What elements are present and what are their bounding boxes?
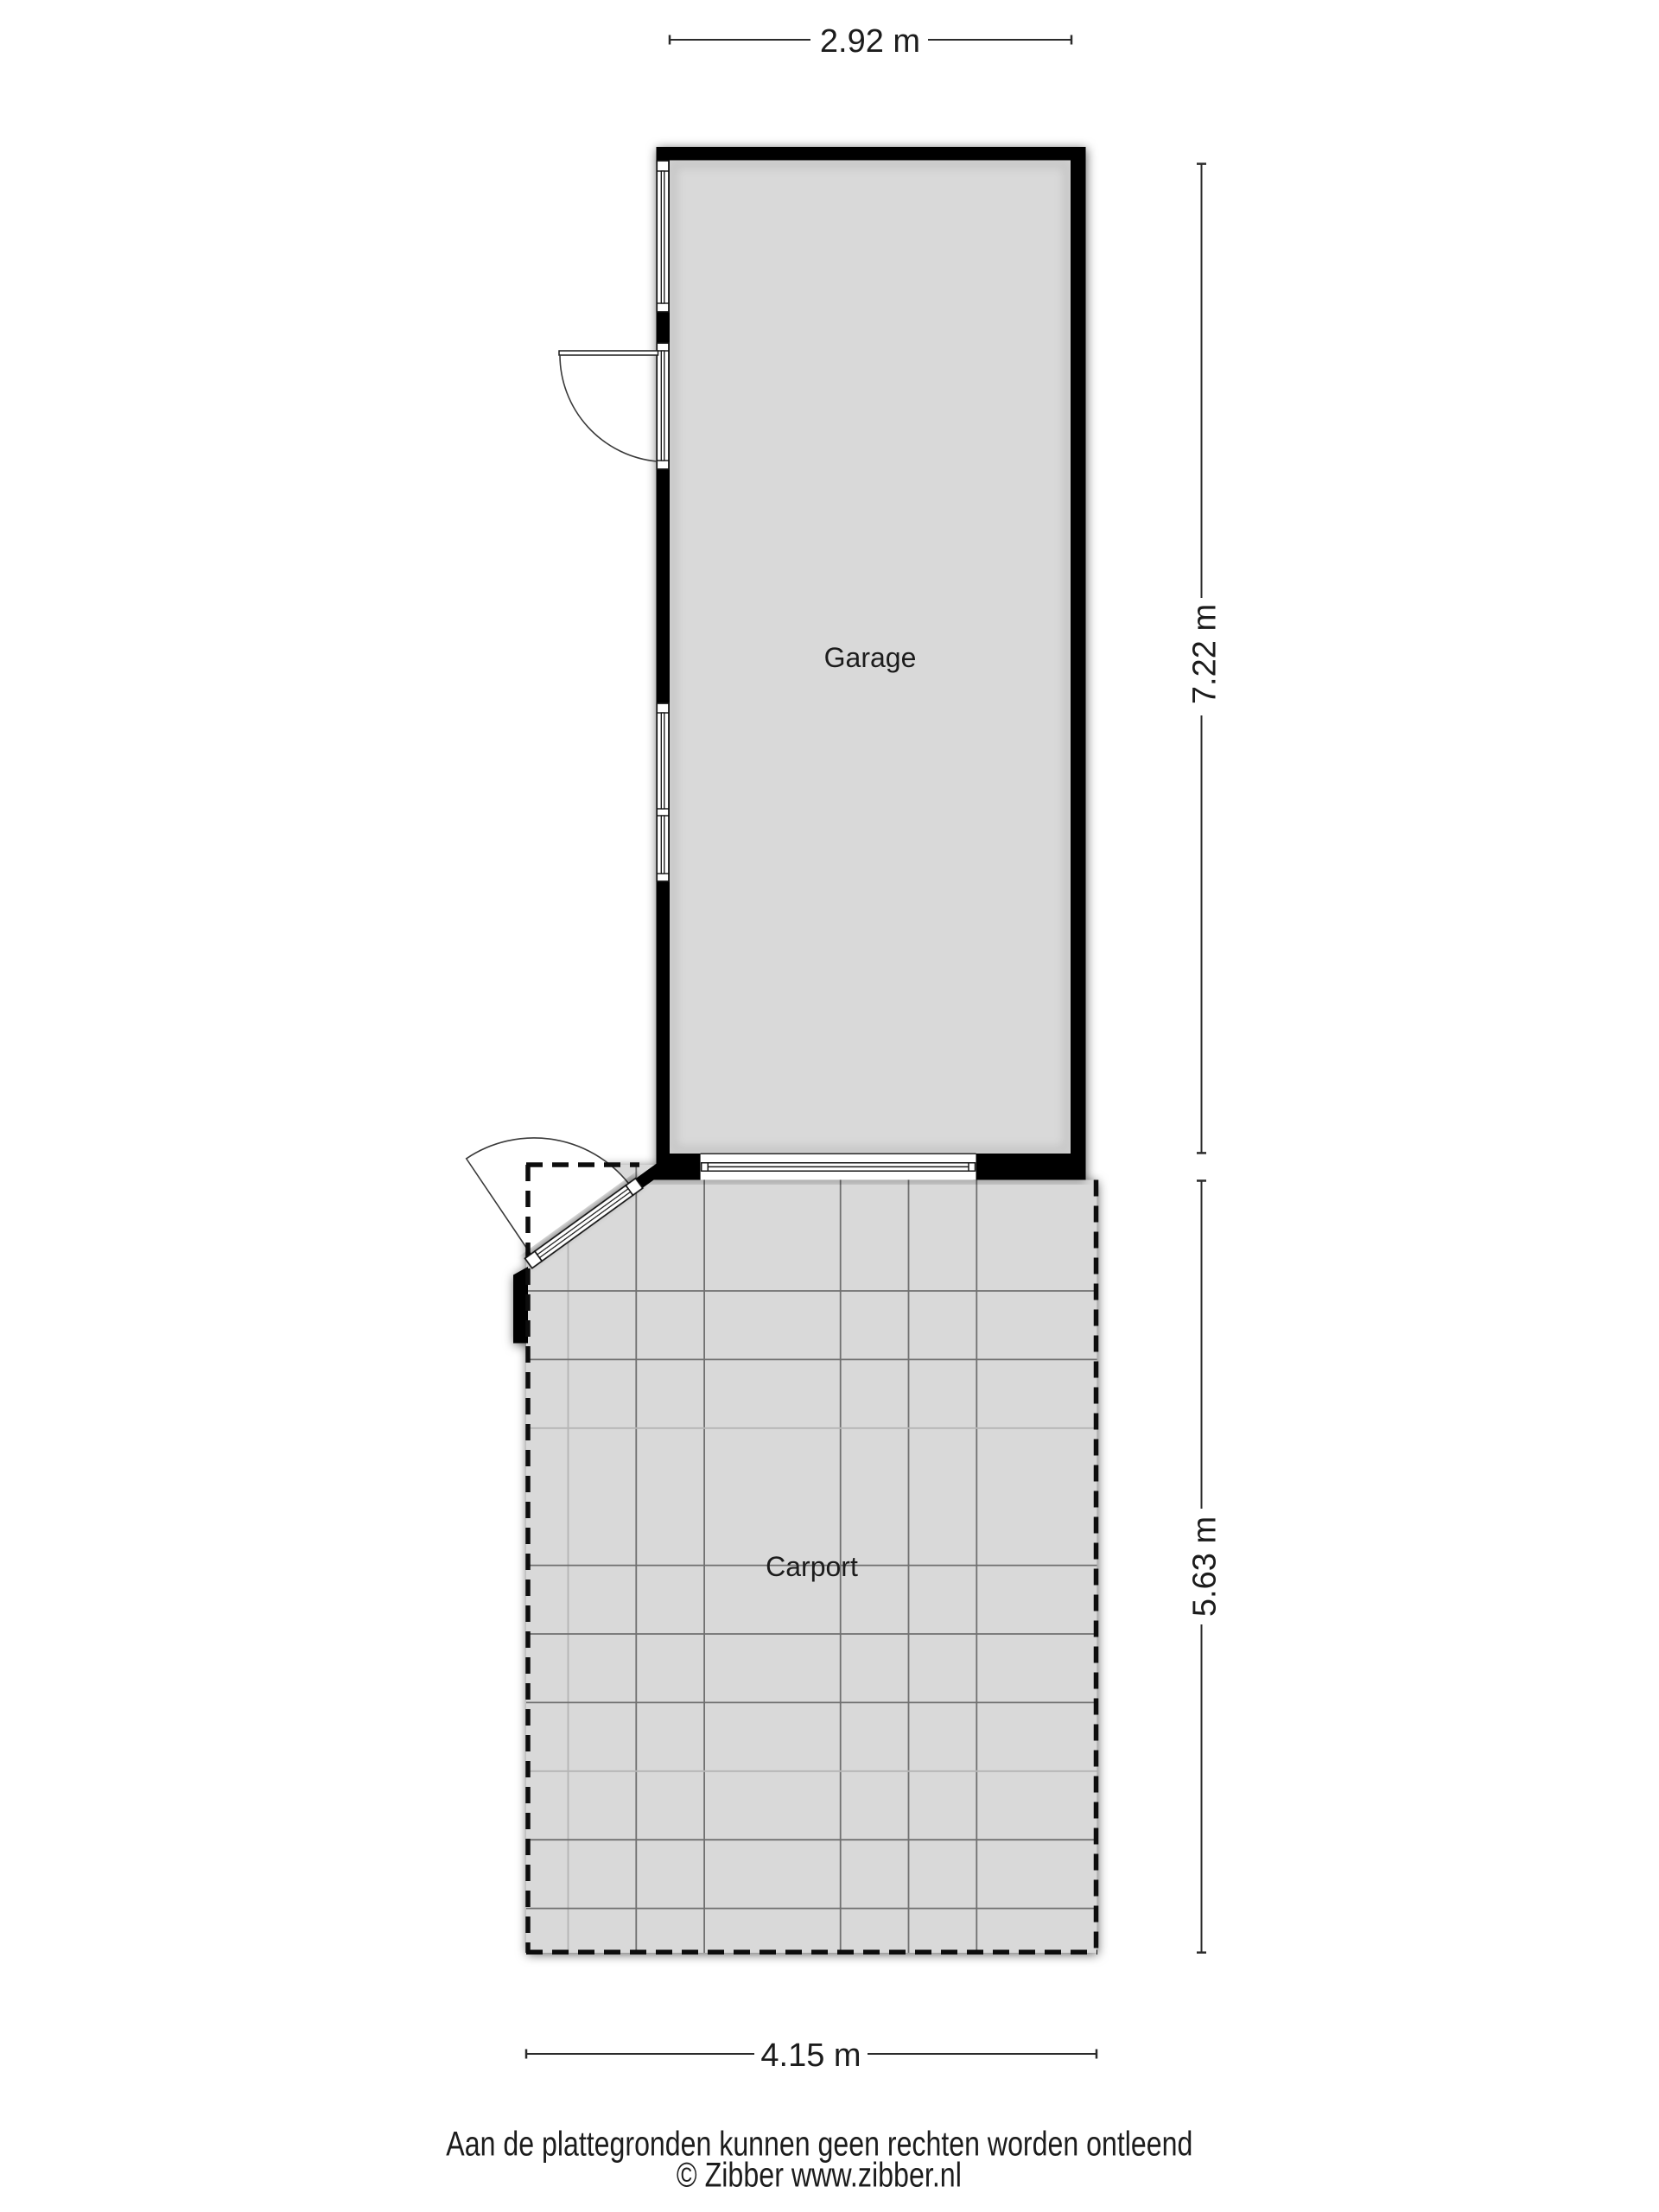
svg-text:Carport: Carport — [766, 1551, 858, 1582]
svg-text:7.22 m: 7.22 m — [1187, 604, 1224, 704]
svg-text:Garage: Garage — [824, 642, 917, 673]
svg-text:© Zibber www.zibber.nl: © Zibber www.zibber.nl — [677, 2157, 962, 2195]
svg-text:5.63 m: 5.63 m — [1187, 1516, 1224, 1617]
svg-text:2.92 m: 2.92 m — [820, 23, 920, 60]
svg-text:4.15 m: 4.15 m — [760, 2037, 861, 2074]
